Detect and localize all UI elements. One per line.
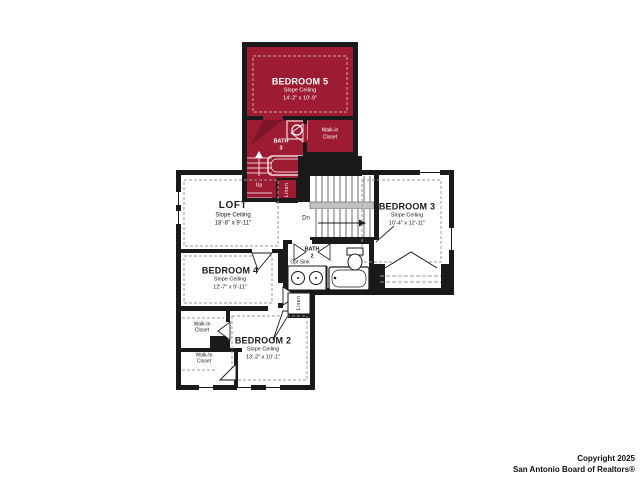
linen-upper-label: Linen xyxy=(284,183,290,198)
bedroom2-ceiling: Slope Ceiling xyxy=(247,347,279,354)
bath2-toilet xyxy=(347,248,363,270)
stairs-down-label: Dn xyxy=(302,215,310,222)
floorplan-drawing xyxy=(0,0,640,480)
bath2-number: 2 xyxy=(310,254,313,261)
walkin-upper-line1: Walk-in xyxy=(322,128,338,134)
bath3-label: BATH xyxy=(274,139,289,146)
stairs-down xyxy=(310,172,379,240)
bath2-label: BATH xyxy=(305,247,320,254)
copyright-line1: Copyright 2025 xyxy=(513,454,635,464)
loft-ceiling: Slope Ceiling xyxy=(215,212,250,219)
loft-dims: 18'-8" x 9'-11" xyxy=(215,220,251,227)
wic2-line2: Closet xyxy=(197,359,211,365)
bath2-tub xyxy=(329,267,369,290)
bedroom4-label: BEDROOM 4 xyxy=(202,266,258,277)
bedroom5-dims: 14'-2" x 10'-9" xyxy=(283,96,317,103)
loft-label: LOFT xyxy=(219,200,248,212)
bedroom5-label: BEDROOM 5 xyxy=(272,77,328,88)
stairs-railing xyxy=(310,202,374,209)
bedroom2-label: BEDROOM 2 xyxy=(235,336,291,347)
wic1-line2: Closet xyxy=(195,328,209,334)
linen-lower-label: Linen xyxy=(296,296,302,311)
bedroom4-dims: 12'-7" x 9'-11" xyxy=(213,285,246,292)
bedroom5-ceiling: Slope Ceiling xyxy=(284,88,316,95)
bedroom4-ceiling: Slope Ceiling xyxy=(214,277,246,284)
bath2-sinks xyxy=(288,266,326,290)
bedroom3-label: BEDROOM 3 xyxy=(379,202,435,213)
stairs-up-label: Up xyxy=(256,183,262,189)
walkin-upper-line2: Closet xyxy=(323,135,337,141)
copyright-notice: Copyright 2025 San Antonio Board of Real… xyxy=(513,454,635,475)
copyright-line2: San Antonio Board of Realtors® xyxy=(513,465,635,475)
bedroom3-ceiling: Slope Ceiling xyxy=(391,213,423,220)
bath2-opt-sink: Opt Sink xyxy=(290,260,309,266)
bath3-number: 3 xyxy=(279,146,282,153)
bedroom3-dims: 10'-4" x 12'-11" xyxy=(389,221,425,228)
bedroom2-dims: 13'-2" x 10'-1" xyxy=(246,355,280,362)
